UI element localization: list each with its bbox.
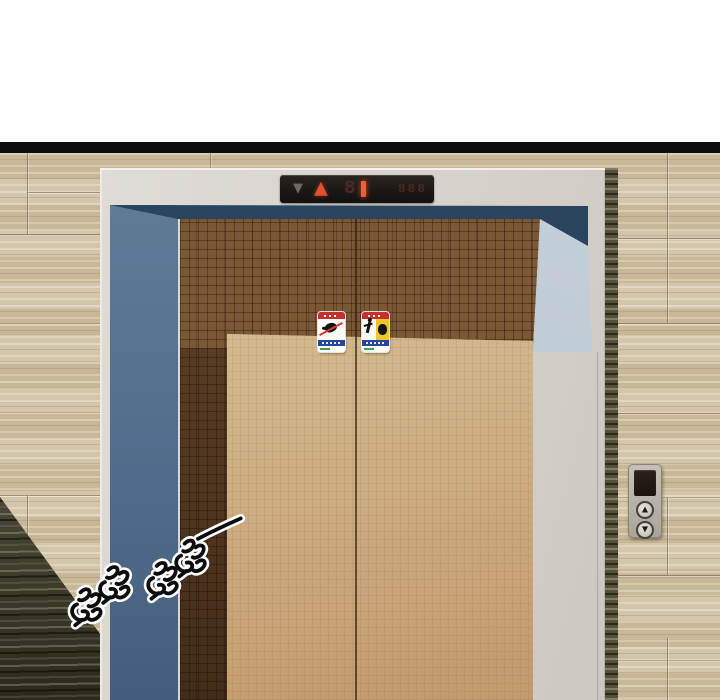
tile-grout-line bbox=[667, 638, 668, 700]
sticker-header bbox=[362, 312, 389, 319]
comic-panel: ▼ ▲ 8 888 bbox=[0, 0, 720, 700]
tile-grout-line bbox=[667, 153, 668, 323]
down-arrow-icon: ▼ bbox=[642, 526, 648, 534]
down-arrow-icon: ▼ bbox=[293, 182, 303, 195]
warning-sticker-left bbox=[318, 312, 345, 352]
tile-grout-line bbox=[210, 153, 211, 168]
floor-display-dim-digit: 8 bbox=[344, 180, 356, 197]
floor-display-lit-segment bbox=[361, 181, 366, 197]
tile-grout-line bbox=[0, 495, 100, 496]
panel-border-bar bbox=[0, 142, 720, 153]
frame-jamb-line bbox=[597, 352, 598, 700]
tile-grout-line bbox=[615, 413, 720, 414]
call-button-down[interactable]: ▼ bbox=[636, 521, 654, 539]
up-arrow-icon: ▲ bbox=[314, 179, 328, 197]
call-button-panel: ▲ ▼ bbox=[628, 464, 662, 538]
up-arrow-icon: ▲ bbox=[642, 506, 648, 514]
tile-grout-line bbox=[27, 192, 100, 193]
sticker-header bbox=[318, 312, 345, 319]
tile-grout-line bbox=[615, 323, 720, 324]
sticker-caption-strip bbox=[318, 346, 345, 352]
sticker-pictogram-hand bbox=[318, 319, 345, 340]
sticker-caption-strip bbox=[362, 346, 389, 352]
tile-grout-line bbox=[0, 412, 100, 413]
falling-figure-icon bbox=[366, 322, 372, 333]
hazard-blob-icon bbox=[378, 324, 387, 335]
tile-grout-line bbox=[0, 323, 100, 324]
call-button-up[interactable]: ▲ bbox=[636, 501, 654, 519]
hall-lantern: ▼ ▲ 8 888 bbox=[280, 175, 434, 203]
sticker-pictogram-figure bbox=[362, 319, 389, 340]
tile-grout-line bbox=[615, 575, 720, 576]
door-center-seam bbox=[355, 219, 357, 700]
tile-grout-line bbox=[0, 234, 100, 235]
tile-grout-line bbox=[27, 153, 28, 234]
tile-grout-line bbox=[667, 497, 668, 575]
wall-edge-shadow-strip bbox=[605, 168, 618, 700]
call-panel-display bbox=[634, 470, 656, 496]
warning-sticker-right bbox=[362, 312, 389, 352]
floor-display-faint-text: 888 bbox=[398, 183, 427, 194]
